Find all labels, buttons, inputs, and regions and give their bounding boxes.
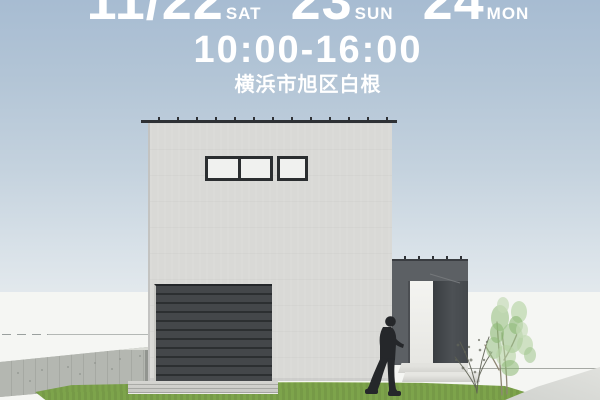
fence-dots bbox=[17, 355, 141, 382]
person-silhouette bbox=[365, 316, 404, 396]
open-house-flyer: 11/22SAT 23SUN 24MON 10:00-16:00 横浜市旭区白根 bbox=[0, 0, 600, 400]
event-header: 11/22SAT 23SUN 24MON 10:00-16:00 横浜市旭区白根 bbox=[8, 0, 600, 110]
day-label-sat: SAT bbox=[226, 4, 262, 23]
event-location: 横浜市旭区白根 bbox=[8, 75, 600, 95]
date-day3: 24 bbox=[423, 0, 485, 31]
green-tree-foliage bbox=[486, 297, 536, 376]
event-dates: 11/22SAT 23SUN 24MON bbox=[8, 0, 600, 28]
day-label-mon: MON bbox=[487, 4, 530, 23]
day-label-sun: SUN bbox=[355, 4, 394, 23]
event-time: 10:00-16:00 bbox=[8, 31, 600, 69]
gate-cable bbox=[430, 274, 460, 283]
bare-tree-twigs bbox=[455, 339, 491, 373]
date-day2: 23 bbox=[291, 0, 353, 31]
date-month-day: 11/22 bbox=[87, 0, 224, 31]
